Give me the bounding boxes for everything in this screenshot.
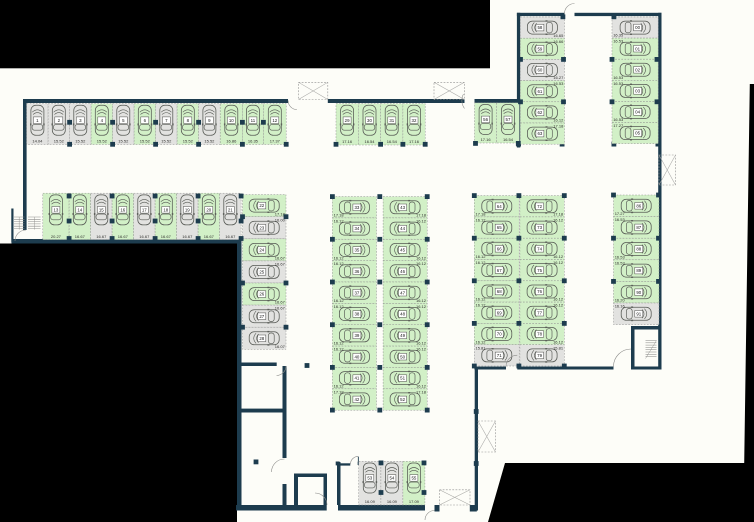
svg-text:17.18: 17.18 [553,124,564,129]
svg-text:21: 21 [228,207,233,212]
svg-text:16.09: 16.09 [387,499,398,504]
svg-text:01: 01 [635,46,640,51]
svg-text:40: 40 [354,354,359,359]
svg-text:16.53: 16.53 [553,81,564,86]
svg-text:16.12: 16.12 [476,218,487,223]
svg-text:29: 29 [345,118,350,123]
svg-text:52: 52 [400,397,405,402]
svg-text:74: 74 [537,246,542,251]
svg-text:00: 00 [635,25,640,30]
svg-text:72: 72 [537,204,542,209]
svg-text:16.53: 16.53 [613,81,624,86]
svg-text:16.12: 16.12 [416,261,427,266]
svg-text:59: 59 [537,46,542,51]
svg-text:17.09: 17.09 [409,499,420,504]
svg-text:12: 12 [272,118,277,123]
svg-text:78: 78 [537,332,542,337]
svg-text:79: 79 [537,353,542,358]
svg-text:19: 19 [185,207,190,212]
svg-text:16.53: 16.53 [615,254,626,259]
svg-text:16.12: 16.12 [416,341,427,346]
svg-text:66: 66 [497,246,502,251]
svg-text:43: 43 [400,205,405,210]
svg-text:16.67: 16.67 [139,234,150,239]
svg-text:45: 45 [400,248,405,253]
svg-text:73: 73 [537,225,542,230]
svg-text:16.12: 16.12 [553,254,564,259]
svg-text:16.53: 16.53 [613,39,624,44]
svg-text:15.81: 15.81 [476,345,487,350]
svg-text:22: 22 [259,203,264,208]
svg-text:17.18: 17.18 [416,389,427,394]
svg-text:15: 15 [99,207,104,212]
svg-text:16.12: 16.12 [553,339,564,344]
svg-text:16.12: 16.12 [416,347,427,352]
svg-text:20.27: 20.27 [51,234,62,239]
svg-text:16.12: 16.12 [553,218,564,223]
svg-text:04: 04 [635,110,640,115]
svg-text:31: 31 [389,118,394,123]
svg-text:16.12: 16.12 [334,347,345,352]
svg-text:16.53: 16.53 [613,75,624,80]
svg-text:16.12: 16.12 [476,303,487,308]
svg-text:16.54: 16.54 [387,139,398,144]
svg-text:61: 61 [537,89,542,94]
svg-text:11: 11 [251,118,256,123]
svg-text:16.67: 16.67 [275,262,286,267]
svg-text:25: 25 [259,270,264,275]
svg-text:16.66: 16.66 [553,39,564,44]
svg-text:17.16: 17.16 [342,139,353,144]
svg-text:56: 56 [483,117,488,122]
svg-text:16.67: 16.67 [275,300,286,305]
svg-text:63: 63 [537,131,542,136]
svg-text:48: 48 [400,312,405,317]
svg-text:15.52: 15.52 [54,139,65,144]
svg-text:16.67: 16.67 [225,234,236,239]
svg-text:14.04: 14.04 [32,139,43,144]
svg-text:16: 16 [120,207,125,212]
svg-text:60: 60 [537,68,542,73]
svg-text:70: 70 [497,332,502,337]
svg-text:62: 62 [537,110,542,115]
svg-text:05: 05 [635,131,640,136]
svg-text:16.12: 16.12 [334,255,345,260]
svg-text:17.18: 17.18 [416,213,427,218]
svg-text:16.67: 16.67 [161,234,172,239]
svg-text:18: 18 [163,207,168,212]
svg-text:24: 24 [259,248,264,253]
svg-text:16.53: 16.53 [615,260,626,265]
svg-text:10: 10 [229,118,234,123]
svg-text:69: 69 [497,310,502,315]
svg-text:15.52: 15.52 [118,139,129,144]
svg-text:27: 27 [259,314,264,319]
svg-text:68: 68 [497,289,502,294]
svg-text:16.67: 16.67 [275,306,286,311]
svg-text:91: 91 [636,311,641,316]
svg-text:64: 64 [497,204,502,209]
svg-text:42: 42 [354,397,359,402]
svg-text:50: 50 [400,354,405,359]
svg-text:16.20: 16.20 [615,298,626,303]
svg-text:16.67: 16.67 [182,234,193,239]
svg-text:77: 77 [537,310,542,315]
svg-text:36: 36 [354,269,359,274]
svg-text:89: 89 [636,268,641,273]
svg-text:16.86: 16.86 [226,139,237,144]
svg-text:58: 58 [537,25,542,30]
svg-text:86: 86 [636,203,641,208]
svg-text:15.52: 15.52 [183,139,194,144]
svg-text:41: 41 [354,376,359,381]
svg-text:16.35: 16.35 [248,139,259,144]
svg-text:35: 35 [354,248,359,253]
svg-text:30: 30 [367,118,372,123]
svg-text:16.12: 16.12 [416,304,427,309]
svg-text:15.52: 15.52 [161,139,172,144]
svg-text:17.18: 17.18 [334,213,345,218]
svg-text:49: 49 [400,333,405,338]
svg-text:23: 23 [259,225,264,230]
svg-text:87: 87 [636,225,641,230]
svg-text:15.81: 15.81 [553,345,564,350]
svg-text:17.27: 17.27 [615,211,626,216]
svg-text:16.12: 16.12 [416,383,427,388]
svg-text:16.67: 16.67 [204,234,215,239]
svg-text:16.12: 16.12 [334,261,345,266]
svg-text:03: 03 [635,89,640,94]
svg-text:55: 55 [411,476,416,481]
svg-text:75: 75 [537,268,542,273]
svg-text:17.27: 17.27 [613,123,624,128]
svg-text:20: 20 [206,207,211,212]
svg-text:17.16: 17.16 [409,139,420,144]
svg-text:16.27: 16.27 [553,75,564,80]
svg-text:16.12: 16.12 [416,219,427,224]
svg-text:16.12: 16.12 [553,303,564,308]
svg-text:16.35: 16.35 [613,33,624,38]
svg-text:16.12: 16.12 [334,341,345,346]
svg-text:28: 28 [259,336,264,341]
svg-text:17.18: 17.18 [476,212,487,217]
svg-text:16.12: 16.12 [416,298,427,303]
svg-text:16.12: 16.12 [476,297,487,302]
svg-text:90: 90 [636,290,641,295]
svg-text:16.12: 16.12 [553,260,564,265]
svg-text:44: 44 [400,226,405,231]
svg-text:16.67: 16.67 [75,234,86,239]
svg-text:15.52: 15.52 [140,139,151,144]
svg-text:16.12: 16.12 [334,383,345,388]
svg-text:15.52: 15.52 [97,139,108,144]
svg-text:17.16: 17.16 [481,137,492,142]
svg-text:26: 26 [259,292,264,297]
svg-text:34: 34 [354,226,359,231]
svg-text:17: 17 [142,207,147,212]
svg-text:47: 47 [400,290,405,295]
svg-text:33: 33 [354,205,359,210]
svg-text:16.12: 16.12 [334,298,345,303]
svg-text:16.67: 16.67 [275,256,286,261]
svg-text:17.37: 17.37 [270,139,281,144]
svg-text:16.12: 16.12 [476,260,487,265]
svg-text:38: 38 [354,312,359,317]
svg-text:15.52: 15.52 [75,139,86,144]
svg-text:32: 32 [412,118,417,123]
svg-text:67: 67 [497,268,502,273]
svg-text:16.54: 16.54 [503,137,514,142]
svg-text:16.53: 16.53 [615,217,626,222]
svg-text:02: 02 [635,67,640,72]
svg-text:57: 57 [506,117,511,122]
svg-text:16.12: 16.12 [476,254,487,259]
svg-text:16.65: 16.65 [553,33,564,38]
svg-text:16.12: 16.12 [334,304,345,309]
svg-text:51: 51 [400,376,405,381]
svg-text:46: 46 [400,269,405,274]
svg-text:17.18: 17.18 [334,389,345,394]
svg-text:39: 39 [354,333,359,338]
svg-text:16.54: 16.54 [364,139,375,144]
svg-text:14: 14 [77,207,82,212]
svg-text:16.12: 16.12 [416,255,427,260]
svg-text:16.12: 16.12 [553,297,564,302]
svg-text:71: 71 [497,353,502,358]
svg-text:54: 54 [389,476,394,481]
svg-text:76: 76 [537,289,542,294]
svg-text:15.52: 15.52 [204,139,215,144]
svg-text:13: 13 [53,207,58,212]
svg-text:16.67: 16.67 [118,234,129,239]
svg-text:53: 53 [367,476,372,481]
svg-text:16.12: 16.12 [476,339,487,344]
svg-text:16.09: 16.09 [365,499,376,504]
svg-text:16.16: 16.16 [615,304,626,309]
svg-text:88: 88 [636,247,641,252]
svg-text:16.12: 16.12 [553,118,564,123]
svg-text:37: 37 [354,290,359,295]
svg-text:16.53: 16.53 [613,117,624,122]
svg-text:16.67: 16.67 [96,234,107,239]
svg-text:16.12: 16.12 [334,219,345,224]
svg-text:16.07: 16.07 [275,344,286,349]
svg-text:65: 65 [497,225,502,230]
svg-text:17.18: 17.18 [553,212,564,217]
